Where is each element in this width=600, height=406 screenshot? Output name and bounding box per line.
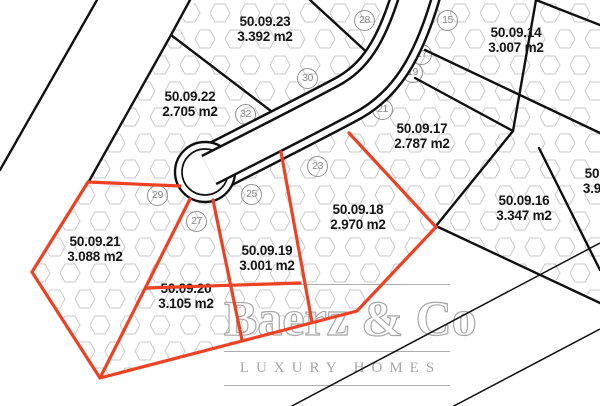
boundary-segment-thin: [290, 243, 600, 406]
red-divider: [349, 133, 436, 227]
boundary-segment-thin: [452, 329, 600, 406]
highlighted-plots: [0, 0, 600, 406]
red-divider: [146, 283, 300, 288]
red-outer-boundary: [32, 182, 436, 378]
red-divider: [213, 200, 242, 340]
cadastral-map: 1528171930213223252927 50.09.233.3: [0, 0, 600, 406]
red-divider: [281, 152, 312, 322]
red-divider: [88, 182, 180, 186]
